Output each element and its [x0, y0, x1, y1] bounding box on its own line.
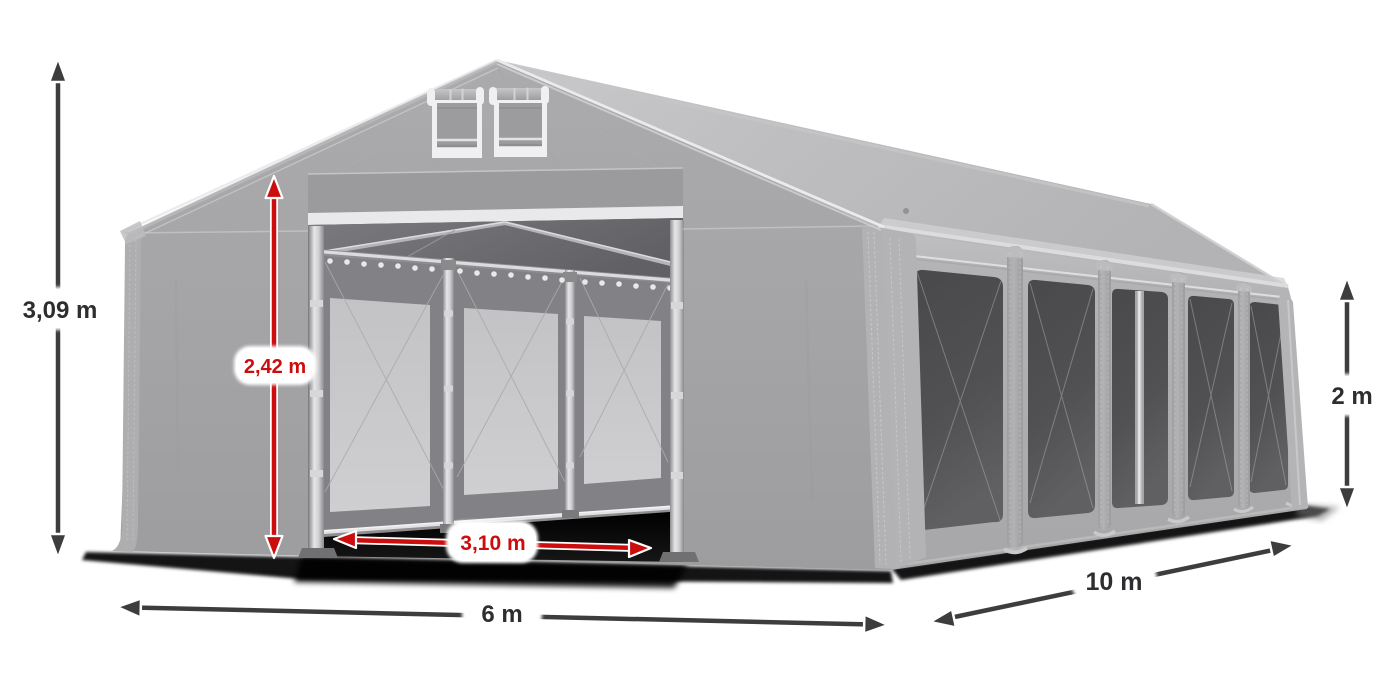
svg-text:10 m: 10 m	[1086, 568, 1143, 596]
svg-text:3,10 m: 3,10 m	[460, 532, 525, 555]
svg-text:3,09 m: 3,09 m	[23, 297, 98, 324]
svg-text:2 m: 2 m	[1331, 383, 1372, 410]
svg-text:6 m: 6 m	[481, 601, 522, 628]
svg-text:2,42 m: 2,42 m	[244, 356, 306, 378]
